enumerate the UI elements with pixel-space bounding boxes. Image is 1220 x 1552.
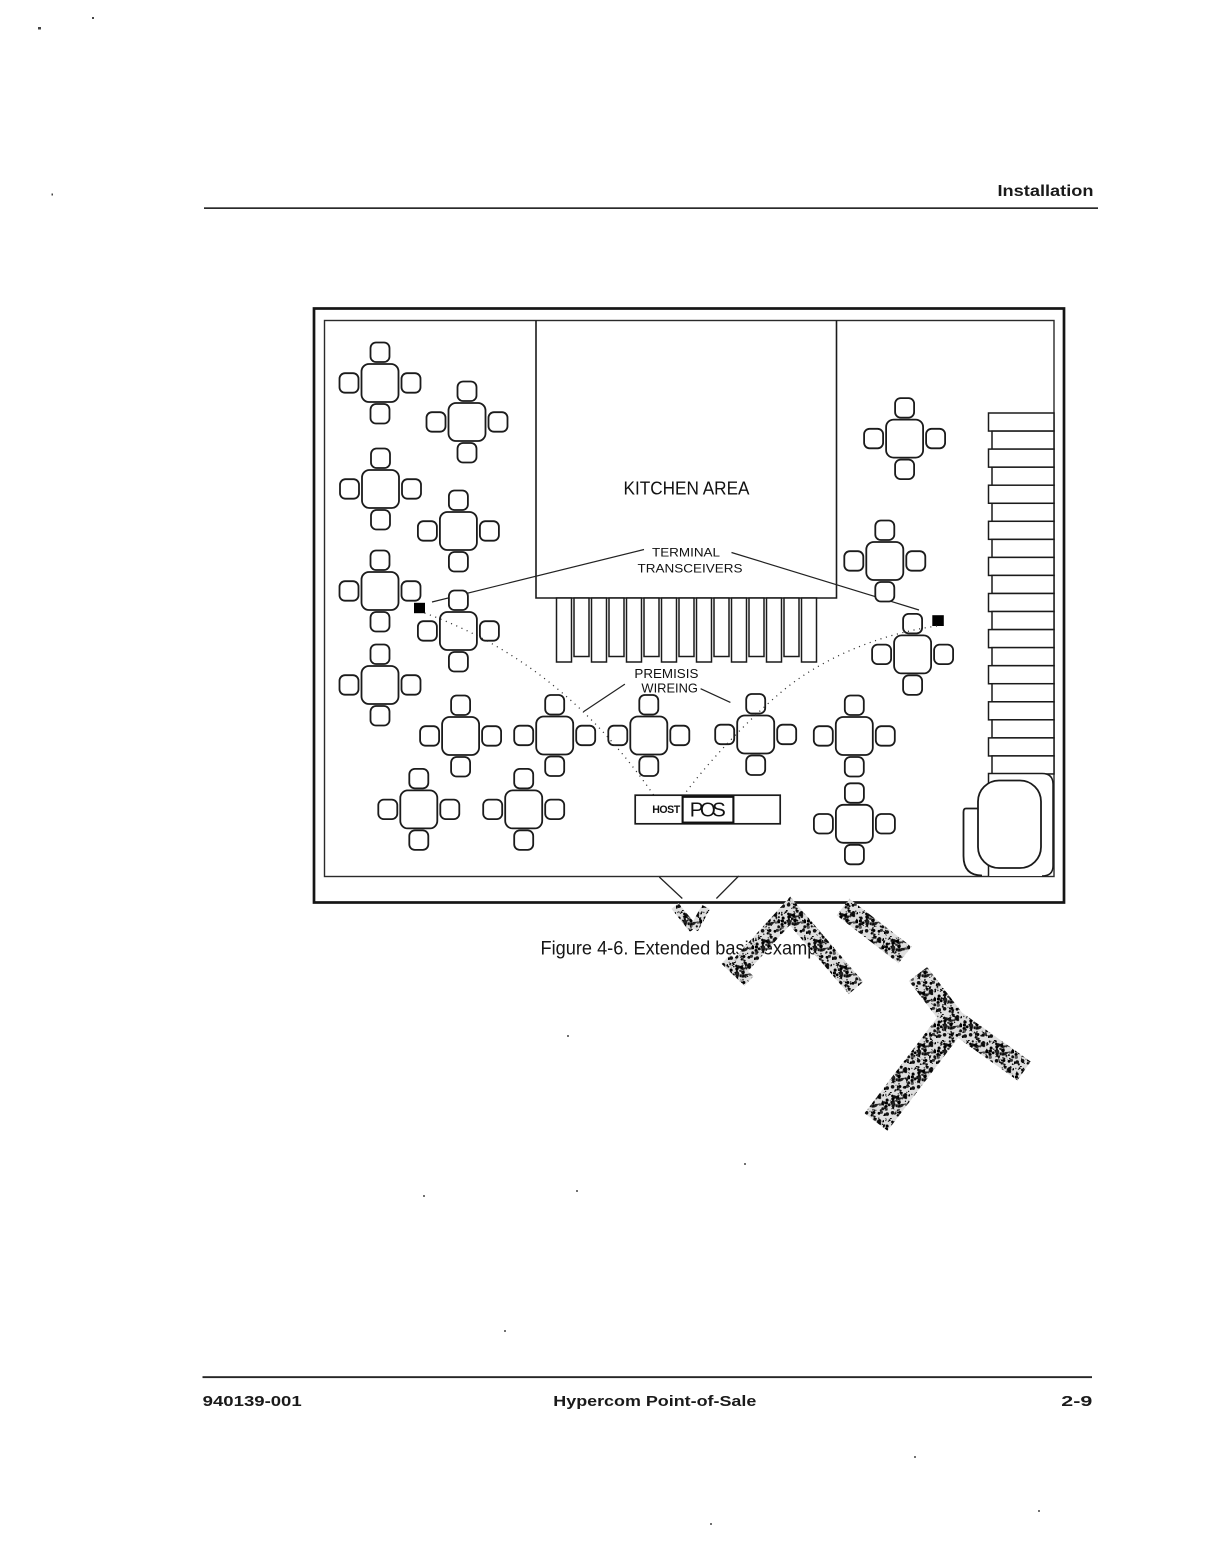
svg-text:TRANSCEIVERS: TRANSCEIVERS [638,563,743,576]
svg-text:940139-001: 940139-001 [203,1393,303,1410]
svg-text:POS: POS [690,798,726,821]
svg-text:KITCHEN AREA: KITCHEN AREA [624,478,751,499]
svg-text:Figure 4-6. Extended basic exa: Figure 4-6. Extended basic example [541,939,832,960]
svg-text:PREMISIS: PREMISIS [634,667,698,681]
svg-text:Installation: Installation [998,183,1094,200]
svg-text:WIREING: WIREING [641,681,698,695]
svg-text:HOST: HOST [652,804,681,816]
svg-text:TERMINAL: TERMINAL [652,547,721,560]
svg-text:2-9: 2-9 [1061,1393,1092,1410]
svg-text:Hypercom Point-of-Sale: Hypercom Point-of-Sale [553,1393,756,1410]
